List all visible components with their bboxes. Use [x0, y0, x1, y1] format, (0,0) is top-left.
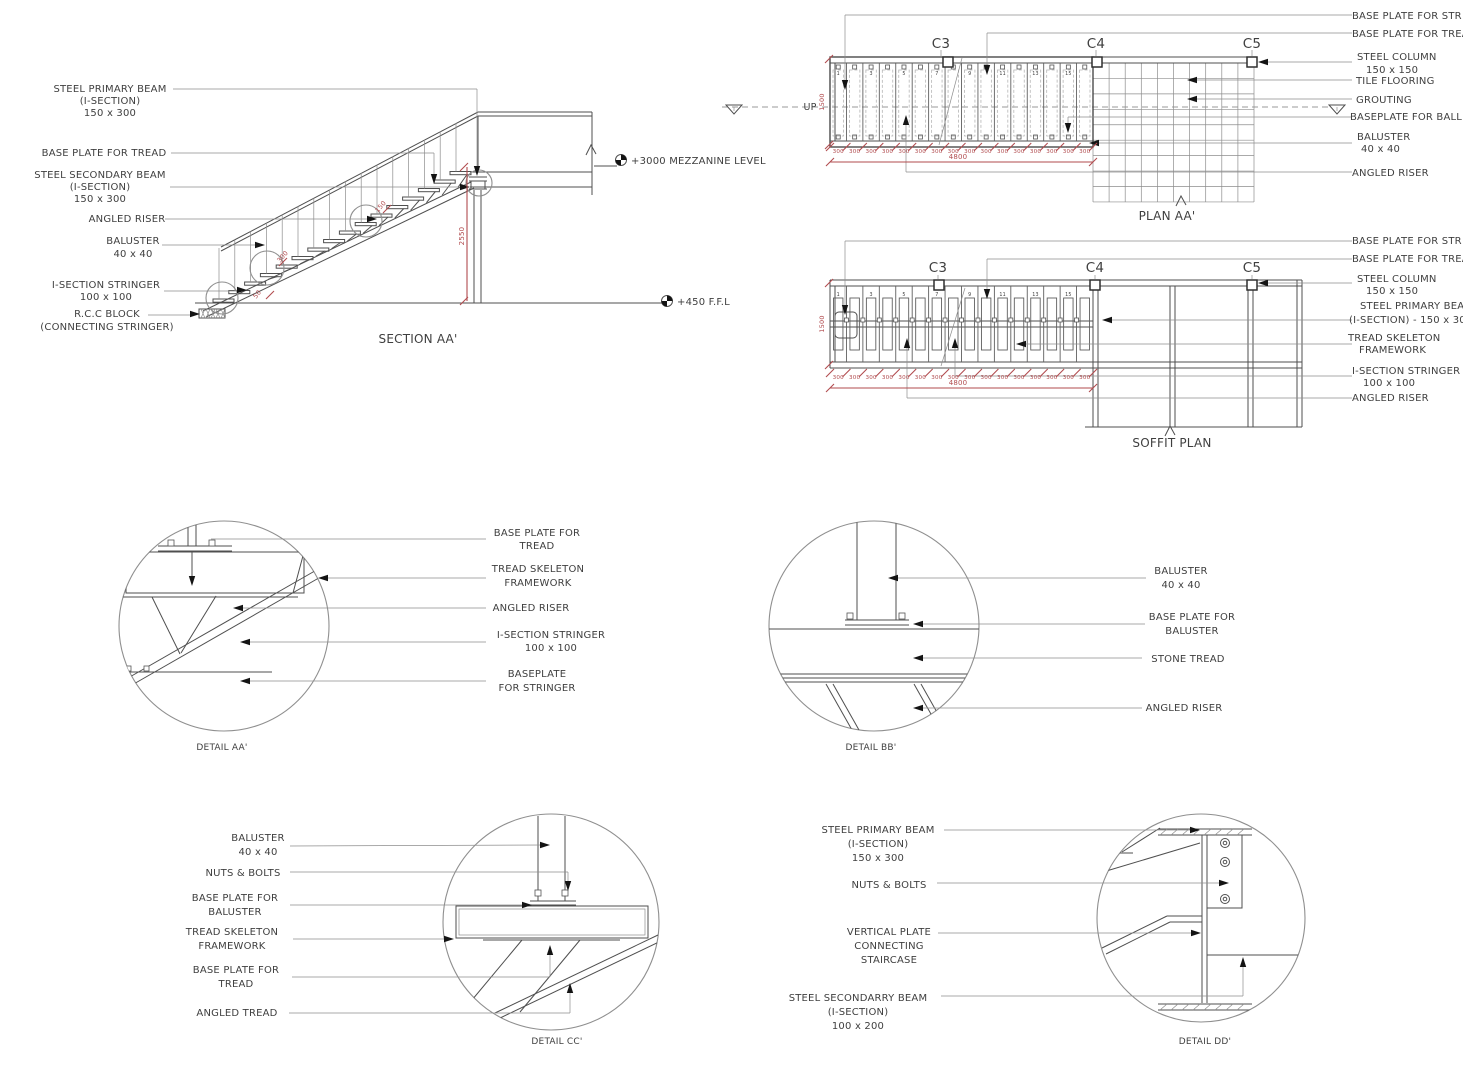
label-base-plate-tread: BASE PLATE FOR TREA	[1352, 29, 1463, 40]
tread-number: 11	[999, 71, 1006, 77]
section-title: SECTION AA'	[379, 332, 458, 346]
tread-dim-label: 300	[1030, 375, 1042, 381]
label-base-plate-baluster: BASE PLATE FOR	[192, 893, 278, 904]
tread-dim-label: 300	[865, 149, 877, 155]
tread-number: 15	[1065, 71, 1072, 77]
detail-aa-title: DETAIL AA'	[196, 743, 247, 753]
detail-bb-title: DETAIL BB'	[846, 743, 897, 753]
column-c3: C3	[929, 260, 947, 276]
label-steel-secondary-beam: STEEL SECONDARY BEAM	[34, 170, 165, 181]
label-stringer-2: 100 x 100	[80, 292, 132, 303]
label-rcc-block: R.C.C BLOCK	[74, 309, 140, 320]
label-angled-riser: ANGLED RISER	[1146, 703, 1223, 714]
label-base-plate-baluster-2: BALUSTER	[1165, 626, 1218, 637]
detail-cc-geometry	[456, 816, 661, 1019]
label-grouting: GROUTING	[1356, 95, 1412, 106]
tread-number: 5	[902, 71, 905, 77]
soffit-title: SOFFIT PLAN	[1132, 436, 1211, 450]
label-baluster-2: 40 x 40	[1361, 144, 1400, 155]
detail-aa-drawing: BASE PLATE FOR TREAD TREAD SKELETON FRAM…	[117, 519, 605, 753]
label-stringer: I-SECTION STRINGER	[1352, 366, 1460, 377]
label-stringer: I-SECTION STRINGER	[497, 630, 605, 641]
detail-dd-circle	[1097, 814, 1305, 1022]
tread-dim-label: 300	[997, 375, 1009, 381]
soffit-plan-drawing: 1357911131530030030030030030030030030030…	[818, 236, 1463, 450]
detail-aa-geometry	[117, 519, 324, 685]
level-mezzanine: +3000 MEZZANINE LEVEL	[631, 156, 766, 167]
tread-dim-label: 300	[915, 375, 927, 381]
tread-number: 3	[869, 71, 872, 77]
detail-dd-drawing: STEEL PRIMARY BEAM (I-SECTION) 150 x 300…	[789, 814, 1305, 1047]
tread-dim-label: 300	[931, 375, 943, 381]
label-angled-riser: ANGLED RISER	[1352, 168, 1429, 179]
dim-300: 300	[275, 249, 289, 264]
tread-dim-label: 300	[849, 375, 861, 381]
label-base-plate-baluster: BASE PLATE FOR	[1149, 612, 1235, 623]
column-c3: C3	[932, 36, 950, 52]
label-tread-skeleton: TREAD SKELETON	[1347, 333, 1440, 344]
tread-dim-label: 300	[1013, 149, 1025, 155]
tread-number: 13	[1032, 292, 1039, 298]
label-baluster: BALUSTER	[231, 833, 284, 844]
label-steel-column: STEEL COLUMN	[1357, 52, 1437, 63]
column-c5: C5	[1243, 36, 1261, 52]
tread-dim-label: 300	[882, 375, 894, 381]
label-stone-tread: STONE TREAD	[1151, 654, 1225, 665]
tread-dim-label: 300	[865, 375, 877, 381]
detail-bb-drawing: BALUSTER 40 x 40 BASE PLATE FOR BALUSTER…	[769, 514, 1235, 753]
label-nuts-bolts: NUTS & BOLTS	[205, 868, 280, 879]
tread-dim-label: 300	[882, 149, 894, 155]
label-secondary-beam-3: 100 x 200	[832, 1021, 884, 1032]
staircase-detail-sheet: STEEL PRIMARY BEAM (I-SECTION) 150 x 300…	[0, 0, 1463, 1080]
label-baluster: BALUSTER	[1154, 566, 1207, 577]
label-baluster-2: 40 x 40	[238, 847, 277, 858]
label-steel-primary-beam: STEEL PRIMARY BEAM	[821, 825, 934, 836]
label-vertical-plate: VERTICAL PLATE	[847, 927, 931, 938]
plan-aa-drawing: 1357911131530030030030030030030030030030…	[722, 11, 1463, 223]
dim-4800: 4800	[949, 379, 968, 387]
label-baseplate-stringer: BASEPLATE	[508, 669, 567, 680]
label-tread-skeleton-2: FRAMEWORK	[504, 578, 571, 589]
detail-cc-drawing: BALUSTER 40 x 40 NUTS & BOLTS BASE PLATE…	[185, 814, 661, 1047]
dim-4800: 4800	[949, 153, 968, 161]
drawing-sheet: STEEL PRIMARY BEAM (I-SECTION) 150 x 300…	[0, 0, 1463, 1080]
detail-aa-leaders	[189, 539, 486, 684]
label-primary-beam-2: (I-SECTION) - 150 x 30	[1349, 315, 1463, 326]
label-tread-skeleton-2: FRAMEWORK	[198, 941, 265, 952]
label-tread-skeleton: TREAD SKELETON	[491, 564, 584, 575]
label-steel-primary-beam-2: (I-SECTION)	[848, 839, 909, 850]
label-steel-column-2: 150 x 150	[1366, 286, 1418, 297]
label-base-plate-tread: BASE PLATE FOR	[193, 965, 279, 976]
tread-dim-label: 300	[1046, 375, 1058, 381]
up-label: UP	[803, 102, 816, 113]
detail-bb-circle	[769, 521, 979, 731]
label-steel-secondary-beam-3: 150 x 300	[74, 194, 126, 205]
tread-dim-label: 300	[833, 375, 845, 381]
label-steel-column: STEEL COLUMN	[1357, 274, 1437, 285]
label-steel-column-2: 150 x 150	[1366, 65, 1418, 76]
label-stringer: I-SECTION STRINGER	[52, 280, 160, 291]
tread-dim-label: 300	[981, 375, 993, 381]
level-ffl: +450 F.F.L	[677, 297, 730, 308]
label-base-plate-baluster-2: BALUSTER	[208, 907, 261, 918]
label-baluster: BALUSTER	[106, 236, 159, 247]
label-vertical-plate-2: CONNECTING	[854, 941, 923, 952]
detail-cc-leaders	[289, 842, 573, 1013]
tread-number: 7	[935, 292, 938, 298]
label-steel-primary-beam: STEEL PRIMARY BEAM	[53, 84, 166, 95]
dim-1500: 1500	[818, 93, 826, 110]
tread-dim-label: 300	[1046, 149, 1058, 155]
detail-bb-leaders	[888, 575, 1146, 711]
label-base-plate-tread-2: TREAD	[519, 541, 555, 552]
tread-number: 3	[869, 292, 872, 298]
label-baluster-2: 40 x 40	[113, 249, 152, 260]
label-tread-skeleton: TREAD SKELETON	[185, 927, 278, 938]
label-rcc-block-2: (CONNECTING STRINGER)	[40, 322, 173, 333]
label-secondary-beam: STEEL SECONDARRY BEAM	[789, 993, 928, 1004]
detail-cc-circle	[443, 814, 659, 1030]
label-steel-primary-beam-2: (I-SECTION)	[80, 96, 141, 107]
tread-number: 5	[902, 292, 905, 298]
tread-dim-label: 300	[1013, 375, 1025, 381]
dim-2550: 2550	[458, 227, 466, 246]
tread-dim-label: 300	[898, 149, 910, 155]
detail-dd-geometry	[1102, 828, 1303, 1010]
label-steel-primary-beam-3: 150 x 300	[84, 108, 136, 119]
label-primary-beam: STEEL PRIMARY BEA	[1360, 301, 1463, 312]
tread-dim-label: 300	[1030, 149, 1042, 155]
section-geometry	[148, 89, 673, 318]
label-base-plate-tread: BASE PLATE FOR TREA	[1352, 254, 1463, 265]
label-base-plate-tread: BASE PLATE FOR	[494, 528, 580, 539]
label-baluster: BALUSTER	[1357, 132, 1410, 143]
label-vertical-plate-3: STAIRCASE	[861, 955, 917, 966]
tread-number: 9	[968, 292, 971, 298]
label-steel-secondary-beam-2: (I-SECTION)	[70, 182, 131, 193]
tread-number: 15	[1065, 292, 1072, 298]
label-tile-flooring: TILE FLOORING	[1355, 76, 1435, 87]
detail-cc-title: DETAIL CC'	[531, 1037, 582, 1047]
label-angled-tread: ANGLED TREAD	[196, 1008, 277, 1019]
tread-number: 1	[837, 71, 840, 77]
label-angled-riser: ANGLED RISER	[493, 603, 570, 614]
dim-1500: 1500	[818, 315, 826, 332]
plan-title: PLAN AA'	[1139, 209, 1196, 223]
tread-dim-label: 300	[997, 149, 1009, 155]
tread-dim-label: 300	[1063, 149, 1075, 155]
dim-150: 150	[373, 199, 387, 214]
label-angled-riser: ANGLED RISER	[89, 214, 166, 225]
label-tread-skeleton-2: FRAMEWORK	[1359, 345, 1426, 356]
label-base-plate-tread-2: TREAD	[218, 979, 254, 990]
tread-dim-label: 300	[1079, 375, 1091, 381]
label-stringer-2: 100 x 100	[525, 643, 577, 654]
detail-dd-title: DETAIL DD'	[1179, 1037, 1231, 1047]
label-base-plate-stringer: BASE PLATE FOR STR	[1352, 11, 1462, 22]
tread-number: 1	[837, 292, 840, 298]
tread-number: 7	[935, 71, 938, 77]
tread-dim-label: 300	[1079, 149, 1091, 155]
tread-number: 13	[1032, 71, 1039, 77]
column-c4: C4	[1087, 36, 1105, 52]
label-baseplate-stringer-2: FOR STRINGER	[499, 683, 576, 694]
column-c4: C4	[1086, 260, 1104, 276]
label-steel-primary-beam-3: 150 x 300	[852, 853, 904, 864]
label-baluster-2: 40 x 40	[1161, 580, 1200, 591]
label-base-plate-stringer: BASE PLATE FOR STR	[1352, 236, 1462, 247]
tread-dim-label: 300	[898, 375, 910, 381]
tread-dim-label: 300	[833, 149, 845, 155]
detail-bb-geometry	[769, 514, 979, 730]
label-base-plate-tread: BASE PLATE FOR TREAD	[42, 148, 167, 159]
label-baseplate-baluster: BASEPLATE FOR BALL	[1350, 112, 1462, 123]
label-stringer-2: 100 x 100	[1363, 378, 1415, 389]
tread-number: 9	[968, 71, 971, 77]
detail-dd-leaders	[937, 827, 1246, 996]
label-nuts-bolts: NUTS & BOLTS	[851, 880, 926, 891]
tread-dim-label: 300	[1063, 375, 1075, 381]
label-angled-riser: ANGLED RISER	[1352, 393, 1429, 404]
tread-number: 11	[999, 292, 1006, 298]
label-secondary-beam-2: (I-SECTION)	[828, 1007, 889, 1018]
tread-dim-label: 300	[981, 149, 993, 155]
tread-dim-label: 300	[849, 149, 861, 155]
column-c5: C5	[1243, 260, 1261, 276]
section-aa-drawing: STEEL PRIMARY BEAM (I-SECTION) 150 x 300…	[34, 84, 766, 346]
tread-dim-label: 300	[915, 149, 927, 155]
tread-dim-label: 300	[931, 149, 943, 155]
